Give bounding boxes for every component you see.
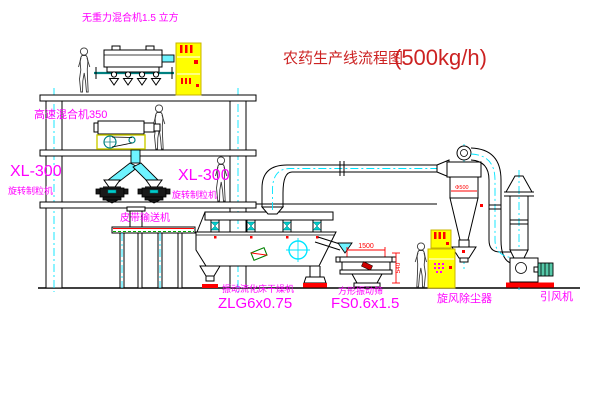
- label-top-mixer: 无重力混合机1.5 立方: [82, 11, 179, 24]
- label-screen-model: FS0.6x1.5: [331, 295, 399, 312]
- label-fan: 引风机: [540, 289, 573, 303]
- screen-length-dimension: 1500: [358, 243, 374, 250]
- label-cyclone: 旋风除尘器: [437, 291, 492, 305]
- floor-slab-mid: [40, 150, 256, 156]
- person-figure: [415, 243, 426, 287]
- floor-slab-low: [40, 202, 256, 208]
- label-high-speed-mixer: 高速混合机350: [34, 107, 107, 121]
- diagram-title: 农药生产线流程图: [283, 50, 403, 67]
- diagram-title-capacity: (500kg/h): [394, 45, 487, 70]
- label-dryer-model: ZLG6x0.75: [218, 295, 292, 312]
- label-left-granulator-name: 旋转制粒机: [8, 185, 53, 196]
- production-line-drawing: Φ500: [0, 0, 600, 403]
- high-speed-mixer: [94, 121, 160, 149]
- control-cabinet-ground: [428, 230, 455, 288]
- induced-draft-fan: [506, 258, 554, 288]
- granulator-right: [138, 180, 170, 203]
- granulator-left: [96, 180, 128, 203]
- gravity-mixer: [94, 46, 176, 85]
- exhaust-duct: [262, 160, 449, 214]
- fluid-bed-dryer: [196, 212, 336, 288]
- label-mid-granulator-model: XL-300: [178, 167, 230, 184]
- control-cabinet-roof: [176, 43, 201, 95]
- label-dryer-name: 振动流化床干燥机: [222, 283, 294, 294]
- cyclone-dimension: Φ500: [455, 185, 469, 191]
- label-mid-granulator-name: 旋转制粒机: [172, 189, 217, 200]
- floor-slab-top: [40, 95, 256, 101]
- person-figure: [79, 48, 90, 92]
- label-left-granulator-model: XL-300: [10, 163, 62, 180]
- screen-height-dimension: 540: [395, 262, 402, 273]
- flow-diagram-canvas: Φ500: [0, 0, 600, 403]
- label-belt-conveyor: 皮带输送机: [120, 211, 170, 224]
